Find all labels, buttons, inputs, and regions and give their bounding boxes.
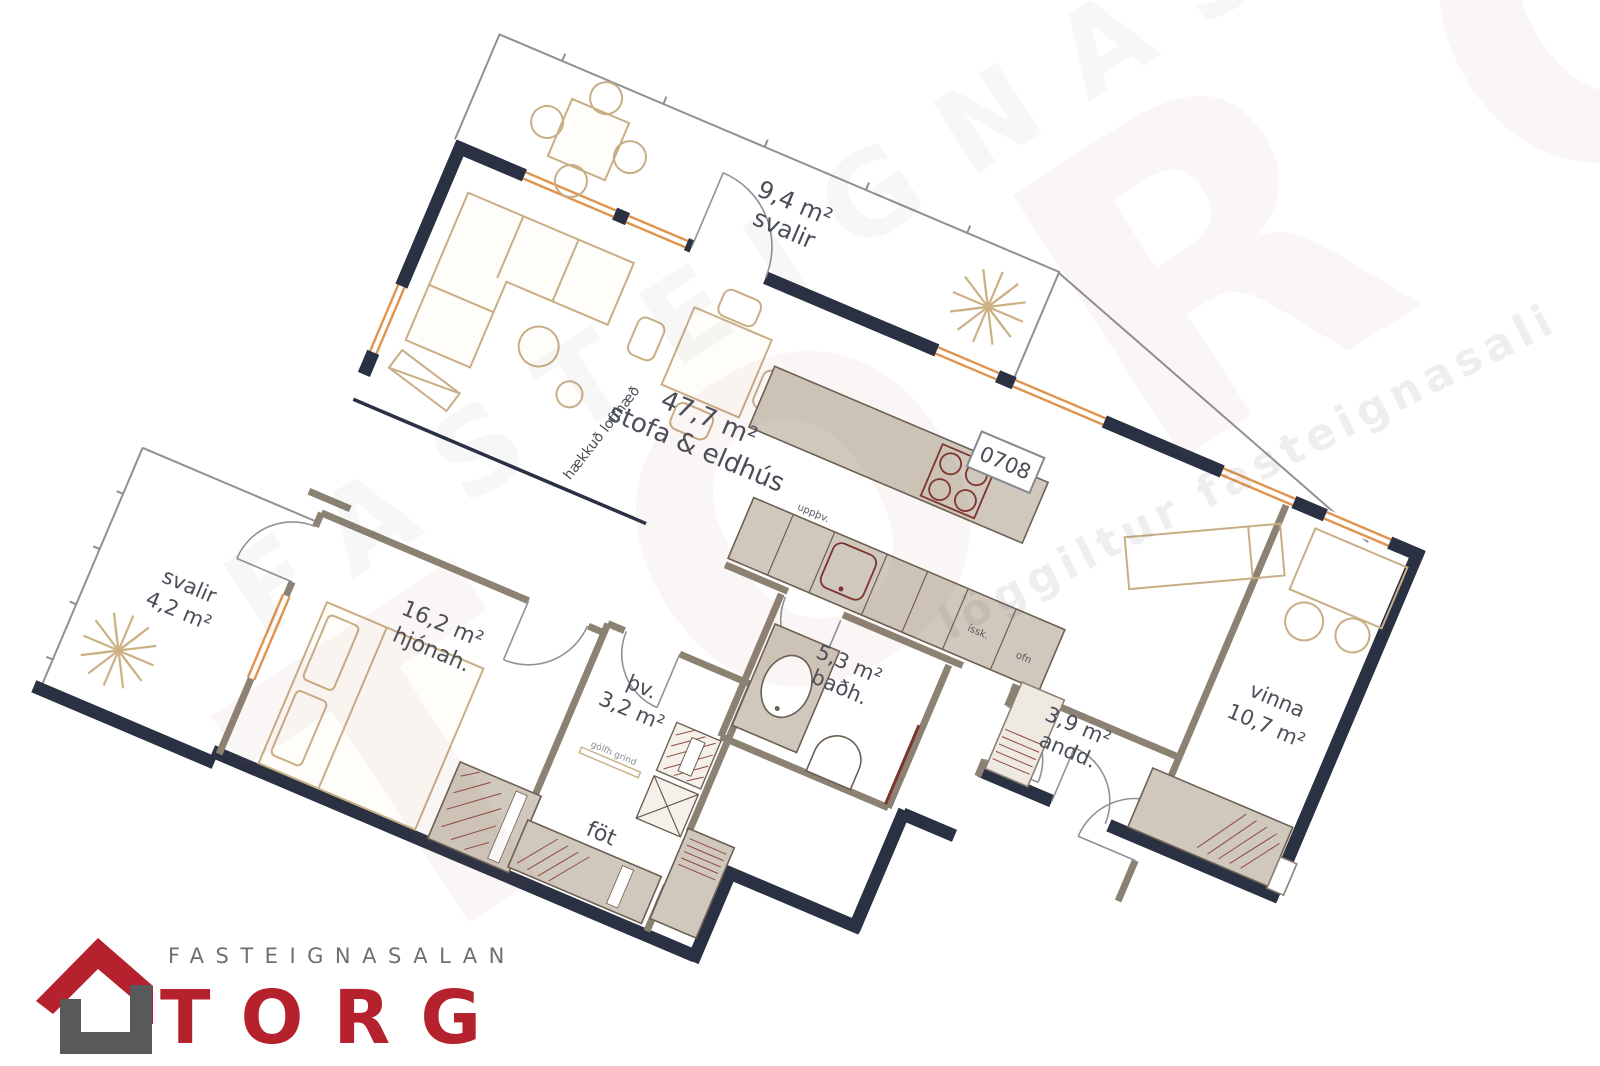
logo-name-main: TORG [160, 975, 511, 1061]
torg-house-icon [36, 938, 153, 1054]
logo-name-top: FASTEIGNASALAN [168, 944, 516, 968]
floorplan-page: uppþv. íssk. ofn 0708 [0, 0, 1600, 1066]
agency-logo: FASTEIGNASALAN TORG [36, 938, 516, 1061]
watermarks: FASTEIGNASALAN TORG löggiltur fasteignas… [163, 0, 1600, 1066]
